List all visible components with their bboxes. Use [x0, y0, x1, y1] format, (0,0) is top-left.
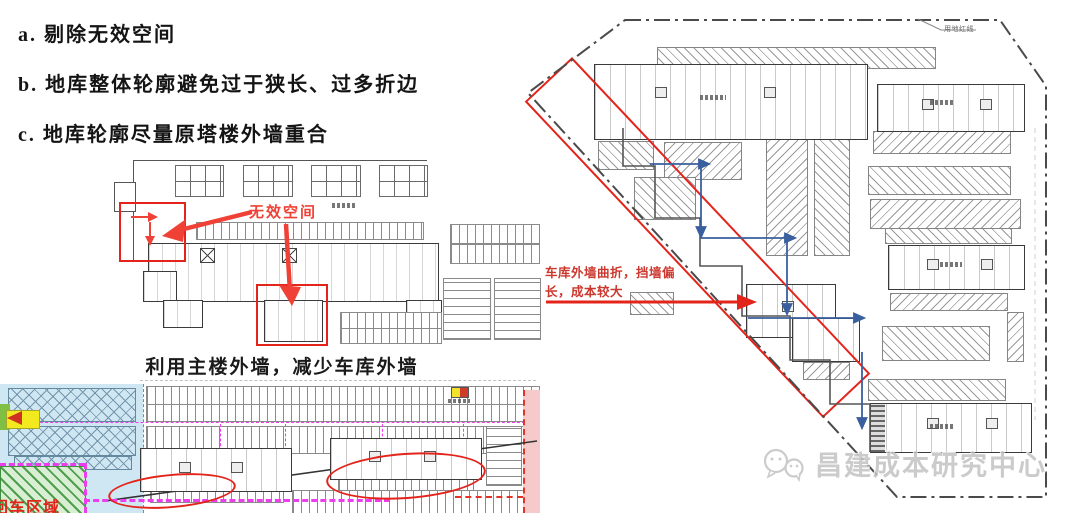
hatched-parking	[868, 379, 1006, 401]
stair-core	[764, 87, 776, 98]
hatched-parking	[1007, 312, 1024, 362]
stair-core	[927, 259, 939, 270]
plan1-caption: 利用主楼外墙，减少车库外墙	[112, 352, 452, 379]
magenta-boundary-line	[0, 422, 540, 423]
magenta-thick-boundary	[84, 463, 87, 513]
microtext	[700, 95, 726, 100]
parking-stall-row	[196, 222, 424, 240]
hatched-parking	[882, 326, 990, 361]
stair-core	[179, 462, 191, 473]
wechat-logo-icon	[760, 446, 808, 482]
turnaround-area-label: 回车区域	[0, 494, 60, 513]
hatched-parking	[8, 426, 136, 456]
note-b: b. 地库整体轮廓避免过于狭长、过多折边	[18, 68, 419, 97]
parking-grid-block	[243, 165, 293, 197]
note-a: a. 剔除无效空间	[18, 18, 176, 47]
parking-grid-block	[379, 165, 428, 197]
building-wing	[163, 300, 203, 328]
stair-core	[981, 259, 993, 270]
parking-stall-row	[340, 312, 442, 344]
parking-grid-block	[311, 165, 361, 197]
tower-outline	[888, 245, 1025, 290]
parking-stall-column	[443, 278, 491, 340]
stair-core	[655, 87, 667, 98]
grid-tick-line	[140, 380, 536, 381]
note-c: c. 地库轮廓尽量原塔楼外墙重合	[18, 118, 329, 147]
slide-canvas: a. 剔除无效空间 b. 地库整体轮廓避免过于狭长、过多折边 c. 地库轮廓尽量…	[0, 0, 1080, 513]
microtext	[930, 424, 954, 429]
stair-core	[282, 248, 297, 263]
hatched-parking	[868, 166, 1011, 195]
hatched-parking	[873, 131, 1011, 154]
parking-stall-row	[450, 244, 540, 264]
watermark-text: 昌建成本研究中心	[815, 444, 1047, 483]
pink-zone	[523, 390, 540, 513]
microtext	[448, 399, 470, 403]
parking-stall-row	[146, 386, 540, 422]
stair-core	[980, 99, 992, 110]
tower-outline	[877, 84, 1025, 132]
microtext	[332, 203, 356, 208]
site-boundary-label: 用地红线	[944, 24, 974, 34]
invalid-space-label: 无效空间	[249, 201, 317, 222]
invalid-space-highlight-box	[256, 284, 328, 346]
entrance-arrow-head	[7, 411, 22, 425]
magenta-thick-boundary	[0, 463, 85, 466]
stair-core	[200, 248, 215, 263]
building-wing	[143, 271, 177, 302]
hatched-parking	[870, 199, 1021, 229]
hatched-parking	[885, 228, 1012, 244]
watermark: 昌建成本研究中心	[760, 444, 1047, 483]
legend-marker	[451, 387, 469, 398]
stair-core	[231, 462, 243, 473]
hatched-parking	[890, 293, 1008, 311]
parking-stall-column	[494, 278, 541, 340]
red-dashed-line	[455, 496, 523, 498]
plan1-top-wall	[133, 160, 427, 161]
bottom-plan: 回车区域	[0, 378, 540, 513]
stair-core	[986, 418, 998, 429]
parking-stall-column	[486, 426, 522, 486]
parking-stall-row	[450, 224, 540, 244]
wall-cost-annotation: 车库外墙曲折，挡墙偏长，成本较大	[545, 264, 681, 302]
microtext	[940, 262, 962, 267]
parking-grid-block	[175, 165, 224, 197]
invalid-space-highlight-box	[119, 202, 186, 262]
microtext	[930, 100, 954, 105]
